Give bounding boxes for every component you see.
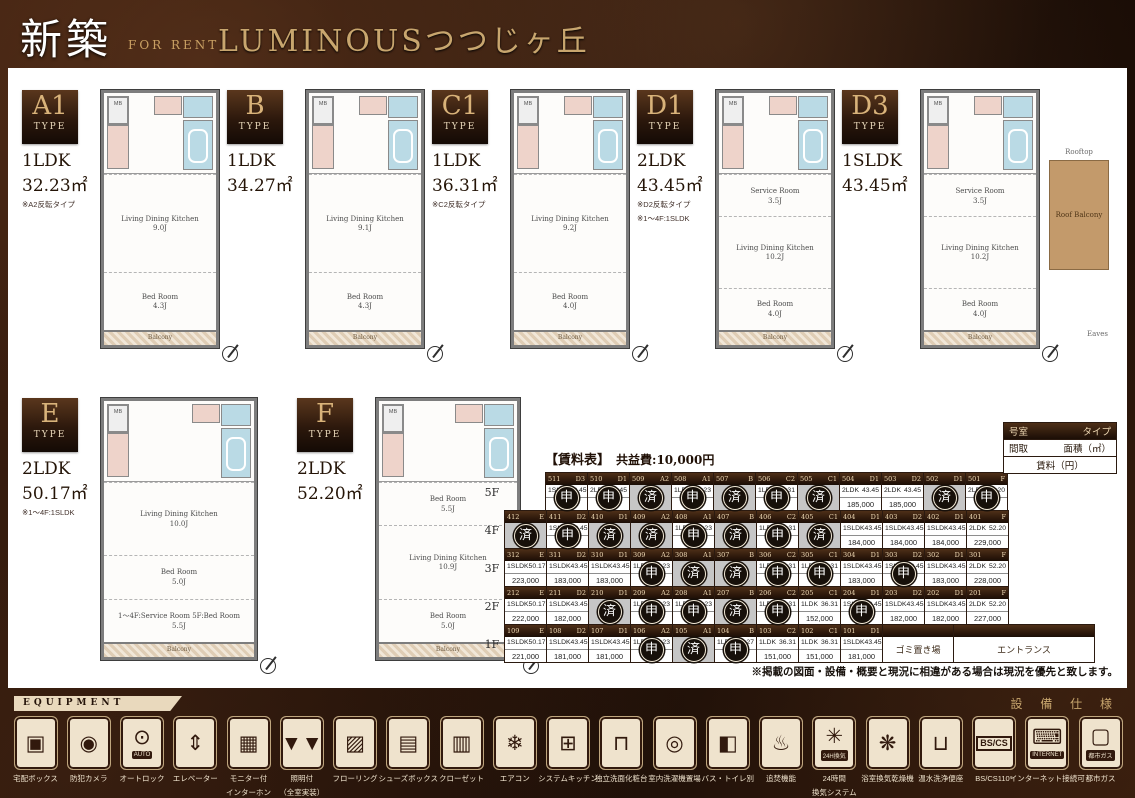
unit-cell: 307B済: [714, 548, 757, 587]
icon-glyph: ⊓: [613, 733, 629, 754]
meter-box: MB: [107, 404, 129, 433]
monitor-intercom-icon: ▦: [227, 716, 271, 770]
unit-cell-header: 201F: [967, 587, 1008, 599]
kitchen-block: [312, 125, 334, 169]
type-badge: FTYPE: [297, 398, 353, 452]
room-type: D1: [955, 589, 964, 597]
room-type: B: [748, 475, 753, 483]
kitchen-block: [722, 125, 744, 169]
room-number: 508: [674, 475, 686, 483]
unit-price: 151,000: [799, 650, 840, 662]
balcony-label: Balcony: [924, 330, 1036, 345]
room-number: 405: [801, 513, 813, 521]
floorplan-unit-E: ETYPE2LDK50.17㎡※1〜4F:1SLDKMBLiving Dinin…: [22, 398, 257, 660]
unit-layout: 1SLDK: [549, 637, 571, 649]
room-number: 509: [632, 475, 644, 483]
unit-cell-body: 1LDK36.31申: [757, 599, 798, 624]
equipment-label: オートロック: [120, 774, 165, 784]
room-type: D1: [619, 513, 628, 521]
dressing-room-block: [388, 96, 418, 118]
unit-cell: 507B済: [713, 472, 756, 511]
dressing-room-block: [484, 404, 514, 426]
floorplan-info: ETYPE2LDK50.17㎡※1〜4F:1SLDK: [22, 398, 94, 660]
unit-cell: 502D1済: [923, 472, 966, 511]
unit-layout-area: 1SLDK43.45: [925, 561, 966, 574]
unit-area: 43.45: [907, 599, 924, 611]
unit-cell-header: 407B: [715, 511, 756, 523]
unit-cell-header: 204D1: [841, 587, 882, 599]
unit-area: 50.17: [529, 599, 546, 611]
unit-cell-body: 1LDK32.23申: [631, 637, 672, 662]
equipment-label: エレベーター: [173, 774, 218, 784]
unit-cell: 207B済: [714, 586, 757, 625]
unit-cell-body: 済: [631, 523, 672, 548]
room-type: C2: [786, 475, 795, 483]
equipment-item: ✳24H換気24時間換気システム: [809, 716, 860, 798]
room-number: 105: [675, 627, 687, 635]
room-label: Living Dining Kitchen10.2J: [924, 216, 1036, 287]
unit-cell: 412E済: [504, 510, 547, 549]
floorplan-drawing: MBLiving Dining Kitchen9.1JBed Room4.3JB…: [306, 90, 424, 348]
for-rent-label: FOR RENT: [128, 38, 219, 52]
room-type: A1: [702, 475, 711, 483]
balcony-label: Balcony: [309, 330, 421, 345]
room-label: 1〜4F:Service Room 5F:Bed Room5.5J: [104, 599, 254, 642]
unit-cell-body: 済: [715, 523, 756, 548]
room-number: 109: [507, 627, 519, 635]
room-number: 102: [801, 627, 813, 635]
unit-cell-header: 207B: [715, 587, 756, 599]
type-word: TYPE: [22, 122, 78, 132]
floorplan-info: C1TYPE1LDK36.31㎡※C2反転タイプ: [432, 90, 504, 348]
unit-cell-header: 210D1: [589, 587, 630, 599]
unit-cell-body: 2LDK52.20228,000: [967, 561, 1008, 586]
unit-cell-body: 1SLDK43.45184,000: [925, 523, 966, 548]
unit-area: 36.31: [779, 637, 796, 649]
room-number: 505: [800, 475, 812, 483]
unit-cell-header: 502D1: [924, 473, 965, 485]
unit-cell: 401F2LDK52.20229,000: [966, 510, 1009, 549]
room-label: Bed Room4.3J: [309, 272, 421, 330]
unit-layout-area: 2LDK52.20: [967, 561, 1008, 574]
room-type: D2: [912, 475, 921, 483]
unit-cell-body: 1SLDK43.45182,000: [547, 599, 588, 624]
unit-layout-area: 1SLDK43.45: [841, 637, 882, 650]
unit-area: 43.45: [949, 523, 966, 535]
row-offset-spacer: [505, 473, 546, 511]
room-number: 311: [549, 551, 561, 559]
unit-cell-header: 303D2: [883, 549, 924, 561]
floorplans-row-1: A1TYPE1LDK32.23㎡※A2反転タイプMBLiving Dining …: [22, 90, 1112, 348]
icon-glyph: ▥: [452, 733, 472, 754]
unit-area: 50.17: [529, 637, 546, 649]
plan-area: 34.27㎡: [227, 171, 299, 196]
unit-cell: 311D21SLDK43.45183,000: [546, 548, 589, 587]
room-type: A1: [703, 551, 712, 559]
room-size: 5.5J: [172, 622, 186, 630]
equipment-label: モニター付: [230, 774, 268, 784]
unit-cell-body: 1SLDK43.45181,000: [547, 637, 588, 662]
unit-price: 222,000: [505, 612, 546, 624]
equipment-label: バス・トイレ別: [702, 774, 755, 784]
room-size: 9.2J: [563, 224, 577, 232]
unit-layout-area: 1SLDK43.45: [925, 599, 966, 612]
unit-area: 52.20: [989, 523, 1006, 535]
equipment-label: 独立洗面化粧台: [595, 774, 648, 784]
auto-lock-icon: ⊙AUTO: [120, 716, 164, 770]
unit-cell-body: 1LDK36.31申: [757, 523, 798, 548]
room-name: Living Dining Kitchen: [736, 244, 813, 253]
compass-icon: [260, 658, 276, 674]
unit-layout: 1SLDK: [927, 523, 949, 535]
unit-cell-header: 304D1: [841, 549, 882, 561]
icon-glyph: ❄: [506, 733, 524, 754]
floorplan-info: D3TYPE1SLDK43.45㎡: [842, 90, 914, 348]
room-label: Service Room3.5J: [719, 174, 831, 216]
unit-cell: 303D21SLDK43.45申: [882, 548, 925, 587]
unit-cell-body: 済: [589, 523, 630, 548]
icon-glyph: BS/CS: [976, 736, 1012, 751]
unit-cell-header: 405C1: [799, 511, 840, 523]
floor-label: 4F: [479, 511, 505, 549]
floor-label: 3F: [479, 549, 505, 587]
unit-cell: 210D1済: [588, 586, 631, 625]
equipment-label: インターネット接続可: [1010, 774, 1085, 784]
plan-layout: 1LDK: [22, 151, 94, 171]
room-type: B: [749, 627, 754, 635]
unit-layout: 1SLDK: [591, 561, 613, 573]
unit-cell-header: 503D2: [882, 473, 923, 485]
ventilation-24h-icon: ✳24H換気: [812, 716, 856, 770]
rooftop-label: Rooftop: [1046, 148, 1112, 156]
washing-machine-icon: ◎: [653, 716, 697, 770]
room-number: 510: [590, 475, 602, 483]
unit-cell-header: 310D1: [589, 549, 630, 561]
unit-layout-area: 1SLDK43.45: [883, 599, 924, 612]
type-code: F: [297, 398, 353, 430]
unit-cell: 503D22LDK43.45185,000: [881, 472, 924, 511]
unit-cell: 301F2LDK52.20228,000: [966, 548, 1009, 587]
unit-cell: 202D11SLDK43.45182,000: [924, 586, 967, 625]
room-type: D1: [618, 475, 627, 483]
utility-zone: MB: [104, 401, 254, 482]
room-type: D1: [871, 551, 880, 559]
kitchen-block: [517, 125, 539, 169]
unit-cell: 108D21SLDK43.45181,000: [546, 624, 589, 663]
room-size: 10.2J: [766, 253, 784, 261]
unit-layout: 2LDK: [969, 561, 986, 573]
unit-cell-header: 501F: [966, 473, 1007, 485]
compass-icon: [632, 346, 648, 362]
unit-cell-header: 312E: [505, 549, 546, 561]
unit-cell: 510D12LDK43.45申: [587, 472, 630, 511]
room-number: 403: [885, 513, 897, 521]
room-type: C2: [787, 627, 796, 635]
icon-glyph: ▦: [239, 733, 259, 754]
room-size: 9.1J: [358, 224, 372, 232]
utility-zone: MB: [514, 93, 626, 174]
facility-cell-label: ゴミ置き場: [883, 637, 953, 662]
type-badge: ETYPE: [22, 398, 78, 452]
unit-cell-body: 済: [673, 637, 714, 662]
unit-cell-header: 106A2: [631, 625, 672, 637]
room-type: D2: [913, 513, 922, 521]
unit-layout: 1SLDK: [885, 523, 907, 535]
eaves-label: Eaves: [1087, 330, 1108, 338]
legend-area-label: 面積（㎡）: [1063, 441, 1111, 455]
bath-block: [388, 120, 418, 170]
unit-cell: 402D11SLDK43.45184,000: [924, 510, 967, 549]
unit-cell: 409A2済: [630, 510, 673, 549]
status-stamp-taken: 済: [682, 638, 706, 662]
type-word: TYPE: [637, 122, 693, 132]
unit-cell-body: 1LDK32.23申: [673, 523, 714, 548]
room-type: D1: [955, 551, 964, 559]
room-name: Bed Room: [430, 495, 466, 504]
washbasin-icon: ⊓: [599, 716, 643, 770]
room-type: A2: [661, 551, 670, 559]
status-stamp-applied: 申: [682, 600, 706, 624]
room-number: 406: [759, 513, 771, 521]
unit-area: 43.45: [571, 637, 588, 649]
floorplan-drawing: MBService Room3.5JLiving Dining Kitchen1…: [921, 90, 1039, 348]
type-badge: D3TYPE: [842, 90, 898, 144]
unit-price: 223,000: [505, 574, 546, 586]
unit-cell-header: 506C2: [756, 473, 797, 485]
room-type: D1: [871, 513, 880, 521]
unit-cell: 511D31SLDK43.45申: [545, 472, 588, 511]
room-name: 1〜4F:Service Room 5F:Bed Room: [118, 612, 240, 621]
unit-cell-header: 105A1: [673, 625, 714, 637]
unit-cell-body: 1SLDK50.17222,000: [505, 599, 546, 624]
room-type: D1: [955, 513, 964, 521]
legend-row-layout: 間取 面積（㎡）: [1004, 439, 1116, 456]
unit-cell-header: 108D2: [547, 625, 588, 637]
icon-glyph: ◧: [718, 733, 738, 754]
room-type: A2: [661, 589, 670, 597]
unit-layout-area: 1SLDK43.45: [589, 637, 630, 650]
room-number: 202: [927, 589, 939, 597]
unit-cell: 205C11LDK36.31152,000: [798, 586, 841, 625]
room-size: 4.3J: [358, 302, 372, 310]
unit-area: 43.45: [949, 561, 966, 573]
room-label: Living Dining Kitchen9.0J: [104, 174, 216, 272]
unit-layout-area: 1SLDK43.45: [883, 523, 924, 536]
room-name: Bed Room: [161, 568, 197, 577]
room-number: 501: [968, 475, 980, 483]
unit-layout-area: 1SLDK43.45: [547, 637, 588, 650]
room-number: 309: [633, 551, 645, 559]
unit-price: 185,000: [840, 498, 881, 510]
equipment-label: インターホン: [226, 788, 271, 798]
equipment-label: BS/CS110°: [975, 774, 1012, 784]
floorplan-unit-D3: D3TYPE1SLDK43.45㎡MBService Room3.5JLivin…: [842, 90, 1112, 348]
equipment-spec-label: 設 備 仕 様: [1011, 695, 1119, 712]
equipment-label: 換気システム: [812, 788, 857, 798]
room-label: Living Dining Kitchen10.0J: [104, 482, 254, 555]
status-stamp-applied: 申: [640, 638, 664, 662]
status-stamp-taken: 済: [723, 486, 747, 510]
status-stamp-applied: 申: [640, 562, 664, 586]
room-number: 210: [591, 589, 603, 597]
plan-layout: 2LDK: [22, 459, 94, 479]
room-number: 212: [507, 589, 519, 597]
unit-area: 43.45: [571, 561, 588, 573]
rooms-zone: Living Dining Kitchen9.0JBed Room4.3J: [104, 174, 216, 330]
floorplan-info: BTYPE1LDK34.27㎡: [227, 90, 299, 348]
unit-cell-header: 302D1: [925, 549, 966, 561]
unit-area: 36.31: [821, 637, 838, 649]
room-type: C2: [787, 551, 796, 559]
unit-cell-body: 1SLDK43.45181,000: [589, 637, 630, 662]
equipment-item: ▥クローゼット: [436, 716, 487, 798]
balcony-label: Balcony: [719, 330, 831, 345]
unit-layout: 1SLDK: [507, 599, 529, 611]
unit-cell-body: 済: [924, 485, 965, 510]
rooms-zone: Living Dining Kitchen9.2JBed Room4.0J: [514, 174, 626, 330]
room-number: 107: [591, 627, 603, 635]
equipment-item: ◎室内洗濯機置場: [649, 716, 700, 798]
unit-cell-body: 1SLDK43.45申: [883, 561, 924, 586]
room-number: 209: [633, 589, 645, 597]
unit-cell-body: 1LDK32.23申: [673, 599, 714, 624]
property-title: LUMINOUSつつじヶ丘: [218, 16, 590, 60]
unit-area: 52.20: [989, 599, 1006, 611]
unit-price: 181,000: [841, 650, 882, 662]
unit-cell-body: 2LDK43.45185,000: [882, 485, 923, 510]
room-name: Living Dining Kitchen: [140, 510, 217, 519]
unit-price: 229,000: [967, 536, 1008, 548]
room-type: F: [1000, 475, 1005, 483]
room-number: 506: [758, 475, 770, 483]
plan-area: 43.45㎡: [842, 171, 914, 196]
unit-layout-area: 1SLDK50.17: [505, 561, 546, 574]
room-number: 312: [507, 551, 519, 559]
unit-area: 43.45: [865, 523, 882, 535]
equipment-item: ⊙AUTOオートロック: [117, 716, 168, 798]
status-stamp-applied: 申: [766, 562, 790, 586]
unit-cell: 204D11SLDK43.45申: [840, 586, 883, 625]
icon-badge: 都市ガス: [1086, 750, 1114, 761]
unit-cell: 305C11LDK36.31申: [798, 548, 841, 587]
plan-layout: 1SLDK: [842, 151, 914, 171]
type-badge: C1TYPE: [432, 90, 488, 144]
table-legend: 号室 タイプ 間取 面積（㎡） 賃料（円）: [1003, 422, 1117, 474]
floorplan-unit-B: BTYPE1LDK34.27㎡MBLiving Dining Kitchen9.…: [227, 90, 424, 348]
price-table-rows: 5F511D31SLDK43.45申510D12LDK43.45申509A2済5…: [479, 473, 1095, 663]
unit-price: 184,000: [883, 536, 924, 548]
room-type: B: [749, 551, 754, 559]
unit-cell-header: 411D2: [547, 511, 588, 523]
unit-layout-area: 1SLDK43.45: [547, 599, 588, 612]
status-stamp-taken: 済: [640, 524, 664, 548]
status-stamp-applied: 申: [766, 600, 790, 624]
room-number: 301: [969, 551, 981, 559]
unit-cell: 209A21LDK32.23申: [630, 586, 673, 625]
unit-price: 182,000: [547, 612, 588, 624]
equipment-label: エアコン: [500, 774, 530, 784]
room-label: Service Room3.5J: [924, 174, 1036, 216]
legend-row-rent: 賃料（円）: [1004, 456, 1116, 473]
equipment-label: 温水洗浄便座: [918, 774, 963, 784]
room-type: B: [749, 513, 754, 521]
meter-box: MB: [312, 96, 334, 125]
price-table-row: 1F109E1SLDK50.17221,000108D21SLDK43.4518…: [479, 625, 1095, 663]
unit-cell-body: 2LDK52.20申: [966, 485, 1007, 510]
unit-cell-header: 103C2: [757, 625, 798, 637]
unit-cell-body: 1SLDK43.45183,000: [589, 561, 630, 586]
unit-cell-body: 済: [714, 485, 755, 510]
rooms-zone: Living Dining Kitchen10.0JBed Room5.0J1〜…: [104, 482, 254, 642]
unit-cell-header: 208A1: [673, 587, 714, 599]
entrance-block: [974, 96, 1002, 115]
compass-icon: [427, 346, 443, 362]
room-type: B: [749, 589, 754, 597]
room-number: 103: [759, 627, 771, 635]
entrance-block: [359, 96, 387, 115]
unit-area: 43.45: [862, 485, 879, 497]
unit-layout: 2LDK: [969, 599, 986, 611]
plan-note: ※D2反転タイプ: [637, 199, 709, 210]
equipment-label: 防犯カメラ: [70, 774, 108, 784]
unit-layout-area: 2LDK52.20: [967, 523, 1008, 536]
price-table-row: 5F511D31SLDK43.45申510D12LDK43.45申509A2済5…: [479, 473, 1095, 511]
room-number: 211: [549, 589, 561, 597]
unit-cell: 506C21LDK36.31申: [755, 472, 798, 511]
unit-area: 43.45: [865, 637, 882, 649]
unit-layout-area: 1SLDK43.45: [589, 561, 630, 574]
equipment-label: 都市ガス: [1086, 774, 1116, 784]
unit-cell-body: 2LDK52.20227,000: [967, 599, 1008, 624]
type-word: TYPE: [22, 430, 78, 440]
unit-price: 221,000: [505, 650, 546, 662]
unit-cell: 410D1済: [588, 510, 631, 549]
internet-icon: ⌨INTERNET: [1025, 716, 1069, 770]
icon-glyph: ❋: [879, 733, 897, 754]
icon-glyph: ▣: [26, 733, 46, 754]
unit-cell-header: 211D2: [547, 587, 588, 599]
type-word: TYPE: [297, 430, 353, 440]
unit-price: 182,000: [925, 612, 966, 624]
unit-cell: 102C11LDK36.31151,000: [798, 624, 841, 663]
unit-cell-body: 済: [505, 523, 546, 548]
status-stamp-taken: 済: [807, 486, 831, 510]
room-number: 408: [675, 513, 687, 521]
unit-cell-header: 206C2: [757, 587, 798, 599]
facility-cell-header: [883, 625, 953, 637]
room-number: 205: [801, 589, 813, 597]
unit-cell-body: 1SLDK50.17223,000: [505, 561, 546, 586]
room-number: 410: [591, 513, 603, 521]
status-stamp-taken: 済: [808, 524, 832, 548]
kitchen-block: [927, 125, 949, 169]
room-type: C1: [829, 589, 838, 597]
room-type: D2: [913, 551, 922, 559]
unit-cell-header: 509A2: [630, 473, 671, 485]
unit-cell-header: 102C1: [799, 625, 840, 637]
room-number: 207: [717, 589, 729, 597]
plan-area: 52.20㎡: [297, 479, 369, 504]
unit-cell-body: 1LDK34.27申: [715, 637, 756, 662]
balcony-label: Balcony: [104, 642, 254, 657]
unit-layout: 1SLDK: [843, 561, 865, 573]
legend-rent-label: 賃料（円）: [1036, 458, 1084, 472]
floorplan-info: A1TYPE1LDK32.23㎡※A2反転タイプ: [22, 90, 94, 348]
unit-cell-header: 511D3: [546, 473, 587, 485]
kitchen-block: [107, 125, 129, 169]
unit-cell: 203D21SLDK43.45182,000: [882, 586, 925, 625]
plan-layout: 2LDK: [637, 151, 709, 171]
